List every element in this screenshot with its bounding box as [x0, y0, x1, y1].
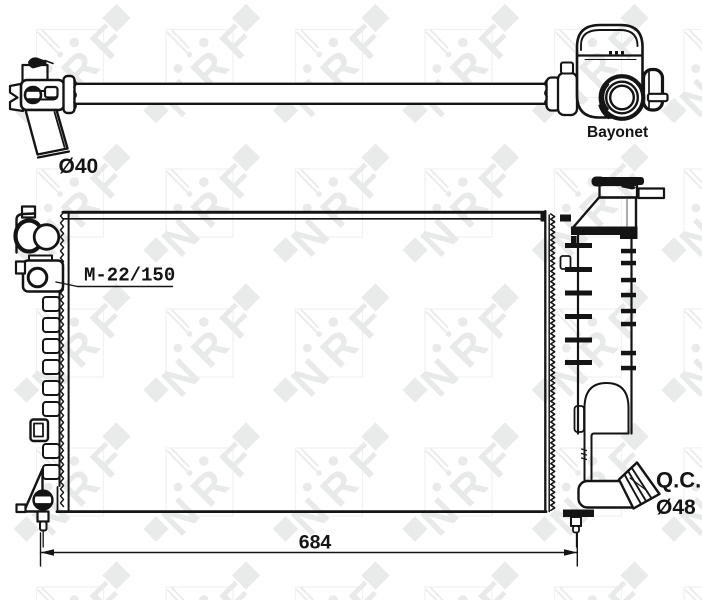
svg-text:684: 684	[299, 532, 332, 554]
svg-text:Q.C.: Q.C.	[656, 468, 701, 493]
svg-text:Ø40: Ø40	[59, 155, 99, 178]
svg-text:Ø48: Ø48	[656, 496, 696, 519]
svg-text:Bayonet: Bayonet	[587, 124, 648, 141]
svg-text:M-22/150: M-22/150	[84, 265, 175, 287]
